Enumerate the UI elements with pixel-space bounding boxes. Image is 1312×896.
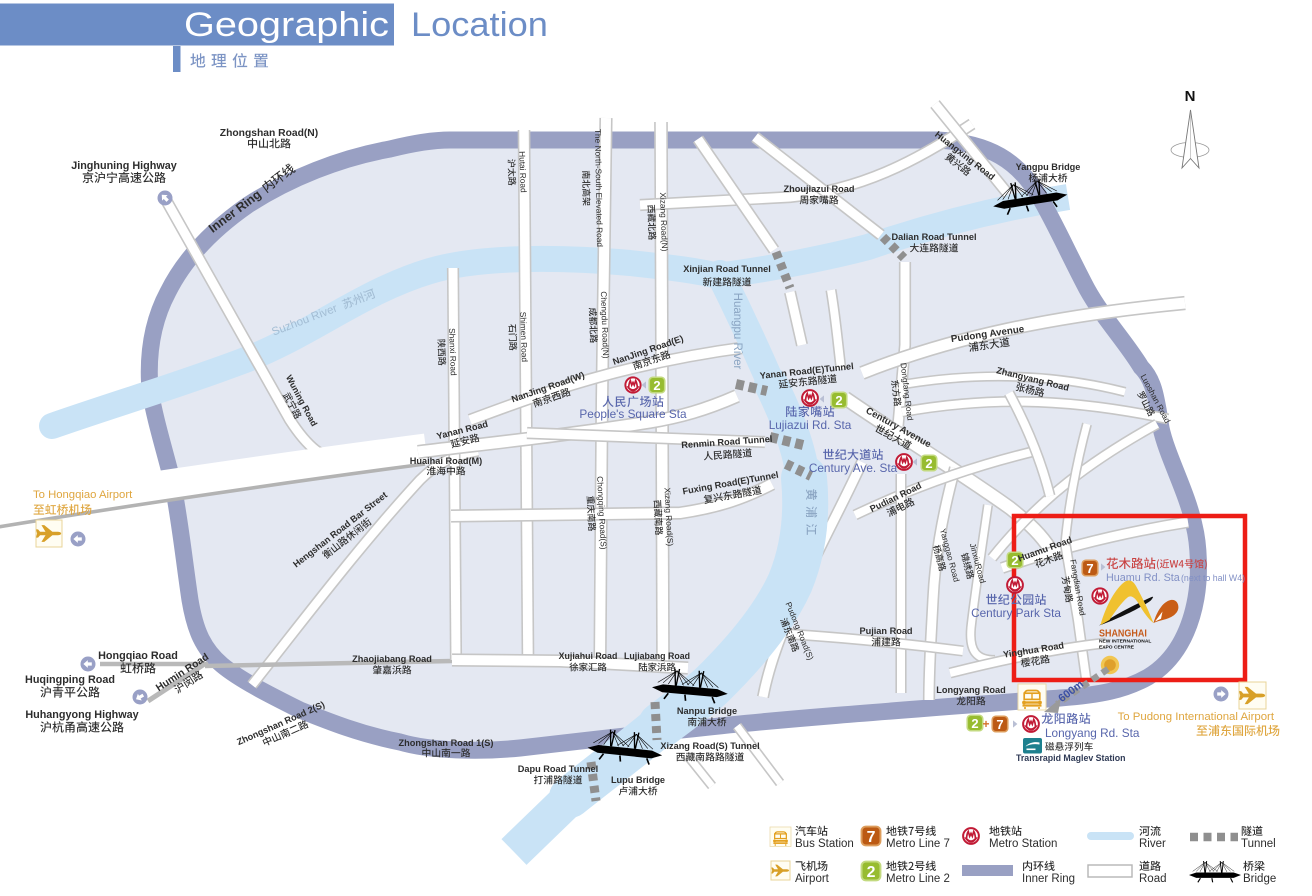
- svg-text:Metro Line 7: Metro Line 7: [886, 838, 950, 850]
- svg-text:Xizang Road(S) Tunnel: Xizang Road(S) Tunnel: [660, 741, 759, 751]
- svg-text:Zhongshan Road(N): Zhongshan Road(N): [220, 128, 318, 139]
- svg-text:(next to hall W4): (next to hall W4): [1181, 573, 1245, 583]
- svg-text:Tunnel: Tunnel: [1241, 838, 1276, 850]
- svg-text:Hongqiao Road: Hongqiao Road: [98, 650, 178, 662]
- svg-text:Xinjian Road Tunnel: Xinjian Road Tunnel: [683, 264, 771, 274]
- svg-text:To Hongqiao Airport: To Hongqiao Airport: [33, 489, 133, 501]
- svg-text:SHANGHAI: SHANGHAI: [1099, 628, 1147, 640]
- svg-text:Pujian Road: Pujian Road: [859, 626, 912, 636]
- svg-text:Lupu Bridge: Lupu Bridge: [611, 775, 665, 785]
- svg-text:Shimen Road: Shimen Road: [518, 312, 530, 363]
- svg-text:Xujiahui Road: Xujiahui Road: [559, 651, 618, 661]
- svg-text:Transrapid Maglev Station: Transrapid Maglev Station: [1016, 753, 1126, 763]
- svg-text:Nanpu Bridge: Nanpu Bridge: [677, 706, 737, 716]
- svg-text:Century Ave. Sta: Century Ave. Sta: [809, 461, 898, 475]
- svg-text:NEW INTERNATIONAL: NEW INTERNATIONAL: [1099, 639, 1151, 645]
- svg-text:Dalian Road Tunnel: Dalian Road Tunnel: [891, 232, 976, 242]
- svg-text:EXPO CENTRE: EXPO CENTRE: [1099, 645, 1135, 651]
- svg-text:Inner Ring: Inner Ring: [1022, 873, 1075, 885]
- svg-text:Bridge: Bridge: [1243, 873, 1276, 885]
- svg-text:Bus Station: Bus Station: [795, 838, 854, 850]
- svg-text:Location: Location: [411, 6, 548, 44]
- svg-text:To Pudong International Airpor: To Pudong International Airport: [1118, 711, 1275, 723]
- svg-text:N: N: [1185, 88, 1196, 105]
- svg-text:Hutai Road: Hutai Road: [517, 151, 528, 193]
- svg-text:Metro Line 2: Metro Line 2: [886, 873, 950, 885]
- svg-text:Longyang Road: Longyang Road: [936, 685, 1005, 695]
- svg-text:Zhoujiazui Road: Zhoujiazui Road: [784, 184, 855, 194]
- svg-text:Dapu Road Tunnel: Dapu Road Tunnel: [518, 764, 598, 774]
- svg-text:Huamu Rd. Sta: Huamu Rd. Sta: [1106, 572, 1180, 584]
- svg-text:Airport: Airport: [795, 873, 830, 885]
- svg-text:Century Park Sta: Century Park Sta: [971, 606, 1061, 620]
- svg-text:The North-South Elevated Road: The North-South Elevated Road: [593, 129, 605, 248]
- svg-text:Huhangyong Highway: Huhangyong Highway: [25, 709, 138, 721]
- svg-text:Zhaojiabang Road: Zhaojiabang Road: [352, 654, 432, 664]
- svg-text:Xizang Road(N): Xizang Road(N): [658, 192, 670, 252]
- svg-text:Huqingping Road: Huqingping Road: [25, 674, 115, 686]
- svg-text:Jinghuning Highway: Jinghuning Highway: [71, 160, 177, 172]
- svg-text:Road: Road: [1139, 873, 1167, 885]
- svg-text:River: River: [1139, 838, 1166, 850]
- svg-text:Huaihai Road(M): Huaihai Road(M): [410, 456, 482, 466]
- svg-text:Shanxi Road: Shanxi Road: [447, 328, 459, 376]
- svg-text:Lujiazui Rd. Sta: Lujiazui Rd. Sta: [769, 418, 852, 432]
- svg-text:People's Square Sta: People's Square Sta: [579, 407, 687, 421]
- svg-text:Longyang Rd. Sta: Longyang Rd. Sta: [1045, 726, 1140, 740]
- svg-text:Lujiabang Road: Lujiabang Road: [624, 651, 690, 661]
- svg-text:Geographic: Geographic: [184, 4, 389, 43]
- svg-text:Huangpu River: Huangpu River: [731, 293, 743, 370]
- svg-text:+: +: [982, 717, 989, 731]
- svg-text:Metro Station: Metro Station: [989, 838, 1057, 850]
- svg-text:Zhongshan Road 1(S): Zhongshan Road 1(S): [399, 738, 494, 748]
- svg-text:Yangpu Bridge: Yangpu Bridge: [1016, 162, 1081, 172]
